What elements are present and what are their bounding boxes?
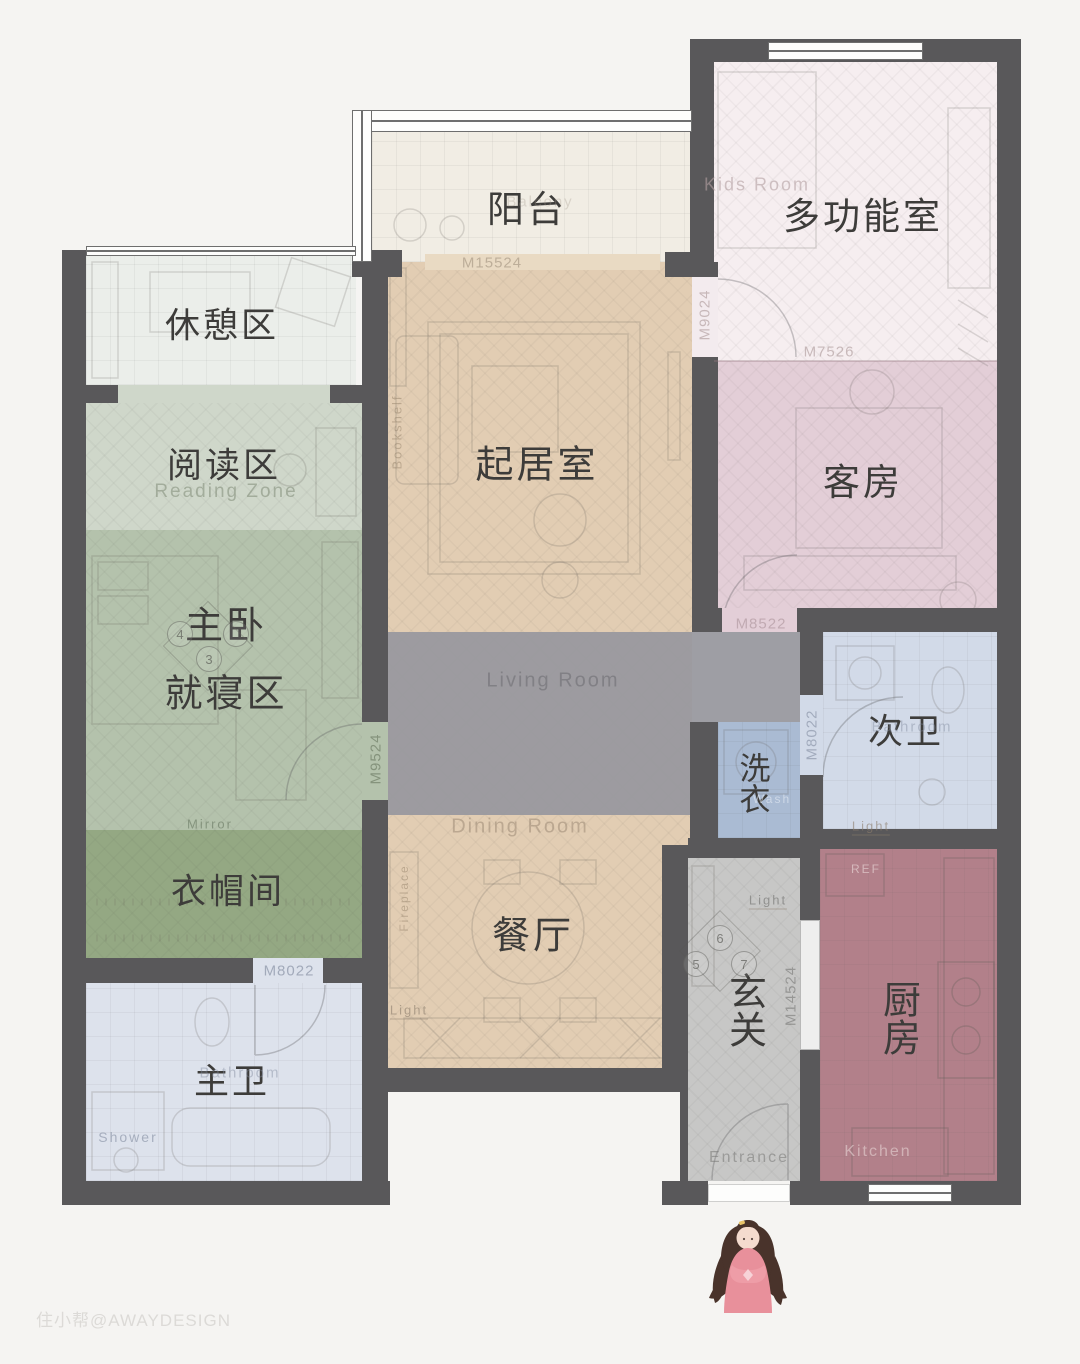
wall-segment — [323, 958, 362, 983]
floor-plan: 休憩区 阅读区 主卧 就寝区 衣帽间 主卫 阳台 起居室 餐厅 多功能室 客房 … — [0, 0, 1080, 1364]
multi-guest-divider — [714, 360, 997, 362]
marker-circle — [223, 621, 249, 647]
wall-segment — [800, 829, 1021, 849]
door-code-master-bath: M8022 — [264, 963, 315, 980]
label-en-reading-zone: Reading Zone — [154, 481, 297, 503]
label-living-room: 起居室 — [475, 434, 598, 489]
wall-segment — [797, 608, 1021, 632]
wall-segment — [62, 250, 86, 1205]
label-guest-bedroom: 客房 — [823, 452, 903, 506]
label-en-ref: REF — [851, 862, 881, 876]
wall-segment — [688, 838, 800, 858]
entry-door-opening — [708, 1184, 790, 1202]
wall-segment — [800, 1050, 820, 1205]
label-en-bookshelf: Bookshelf — [390, 394, 405, 469]
rest-window — [86, 246, 356, 256]
wall-segment — [665, 252, 714, 277]
reading-opening — [118, 385, 330, 403]
label-en-wash: Wash — [753, 792, 791, 806]
label-en-fireplace: Fireplace — [397, 864, 411, 931]
label-en-entrance: Entrance — [709, 1149, 789, 1167]
label-en-light-dining-right: Light — [852, 819, 890, 836]
label-en-mirror: Mirror — [187, 817, 233, 832]
wall-segment — [800, 775, 823, 830]
door-code-multi: M9024 — [697, 290, 714, 341]
wall-segment — [86, 385, 118, 403]
marker-3: 3 — [196, 646, 222, 672]
wall-segment — [362, 800, 388, 1205]
door-code-kitchen: M14524 — [783, 966, 800, 1026]
balcony-window-top — [352, 110, 692, 132]
wall-segment — [690, 62, 714, 262]
corridor-overlay — [388, 722, 690, 815]
kitchen-window — [868, 1184, 952, 1202]
watermark: 住小帮@AWAYDESIGN — [36, 1306, 231, 1331]
door-code-guest: M8522 — [736, 616, 787, 633]
label-en-light-entrance: Light — [749, 893, 787, 910]
wall-segment — [62, 1181, 390, 1205]
label-en-kids-room: Kids Room — [704, 175, 810, 196]
wall-segment — [362, 250, 388, 722]
marker-6: 6 — [707, 925, 733, 951]
label-walkin-closet: 衣帽间 — [171, 864, 285, 915]
label-en-kitchen: Kitchen — [844, 1143, 911, 1161]
wall-segment — [662, 1181, 708, 1205]
label-en-living-room: Living Room — [486, 670, 619, 693]
door-code-balcony: M15524 — [462, 255, 522, 272]
wall-segment — [800, 849, 820, 920]
multi-window — [768, 42, 923, 60]
wall-segment — [692, 357, 718, 630]
marker-4: 4 — [167, 621, 193, 647]
balcony-threshold — [425, 254, 660, 270]
wall-segment — [690, 722, 718, 845]
marker-7: 7 — [731, 951, 757, 977]
label-en-balcony: Balcony — [506, 194, 573, 211]
door-gap-kitchen — [800, 920, 820, 1050]
wall-segment — [692, 608, 722, 632]
label-en-dining-room: Dining Room — [451, 816, 589, 839]
wall-segment — [362, 1068, 688, 1092]
door-code-multi-guest: M7526 — [804, 344, 855, 361]
label-en-bathroom-master: Bathroom — [199, 1065, 280, 1082]
wall-segment — [330, 385, 362, 403]
wall-segment — [800, 630, 823, 695]
balcony-window-left — [352, 110, 372, 262]
label-rest-area: 休憩区 — [165, 298, 279, 349]
label-dining-room: 餐厅 — [492, 905, 574, 960]
label-kitchen: 厨房 — [871, 980, 926, 1056]
label-en-bathroom-second: Bathroom — [871, 719, 952, 736]
marker-5: 5 — [683, 951, 709, 977]
wall-segment — [86, 958, 253, 983]
door-code-second-bath: M8022 — [804, 710, 821, 761]
girl-illustration — [688, 1208, 808, 1338]
wall-segment — [680, 1092, 688, 1181]
door-code-master: M9524 — [368, 734, 385, 785]
label-en-light-dining-left: Light — [390, 1003, 428, 1020]
label-en-shower: Shower — [98, 1129, 157, 1145]
